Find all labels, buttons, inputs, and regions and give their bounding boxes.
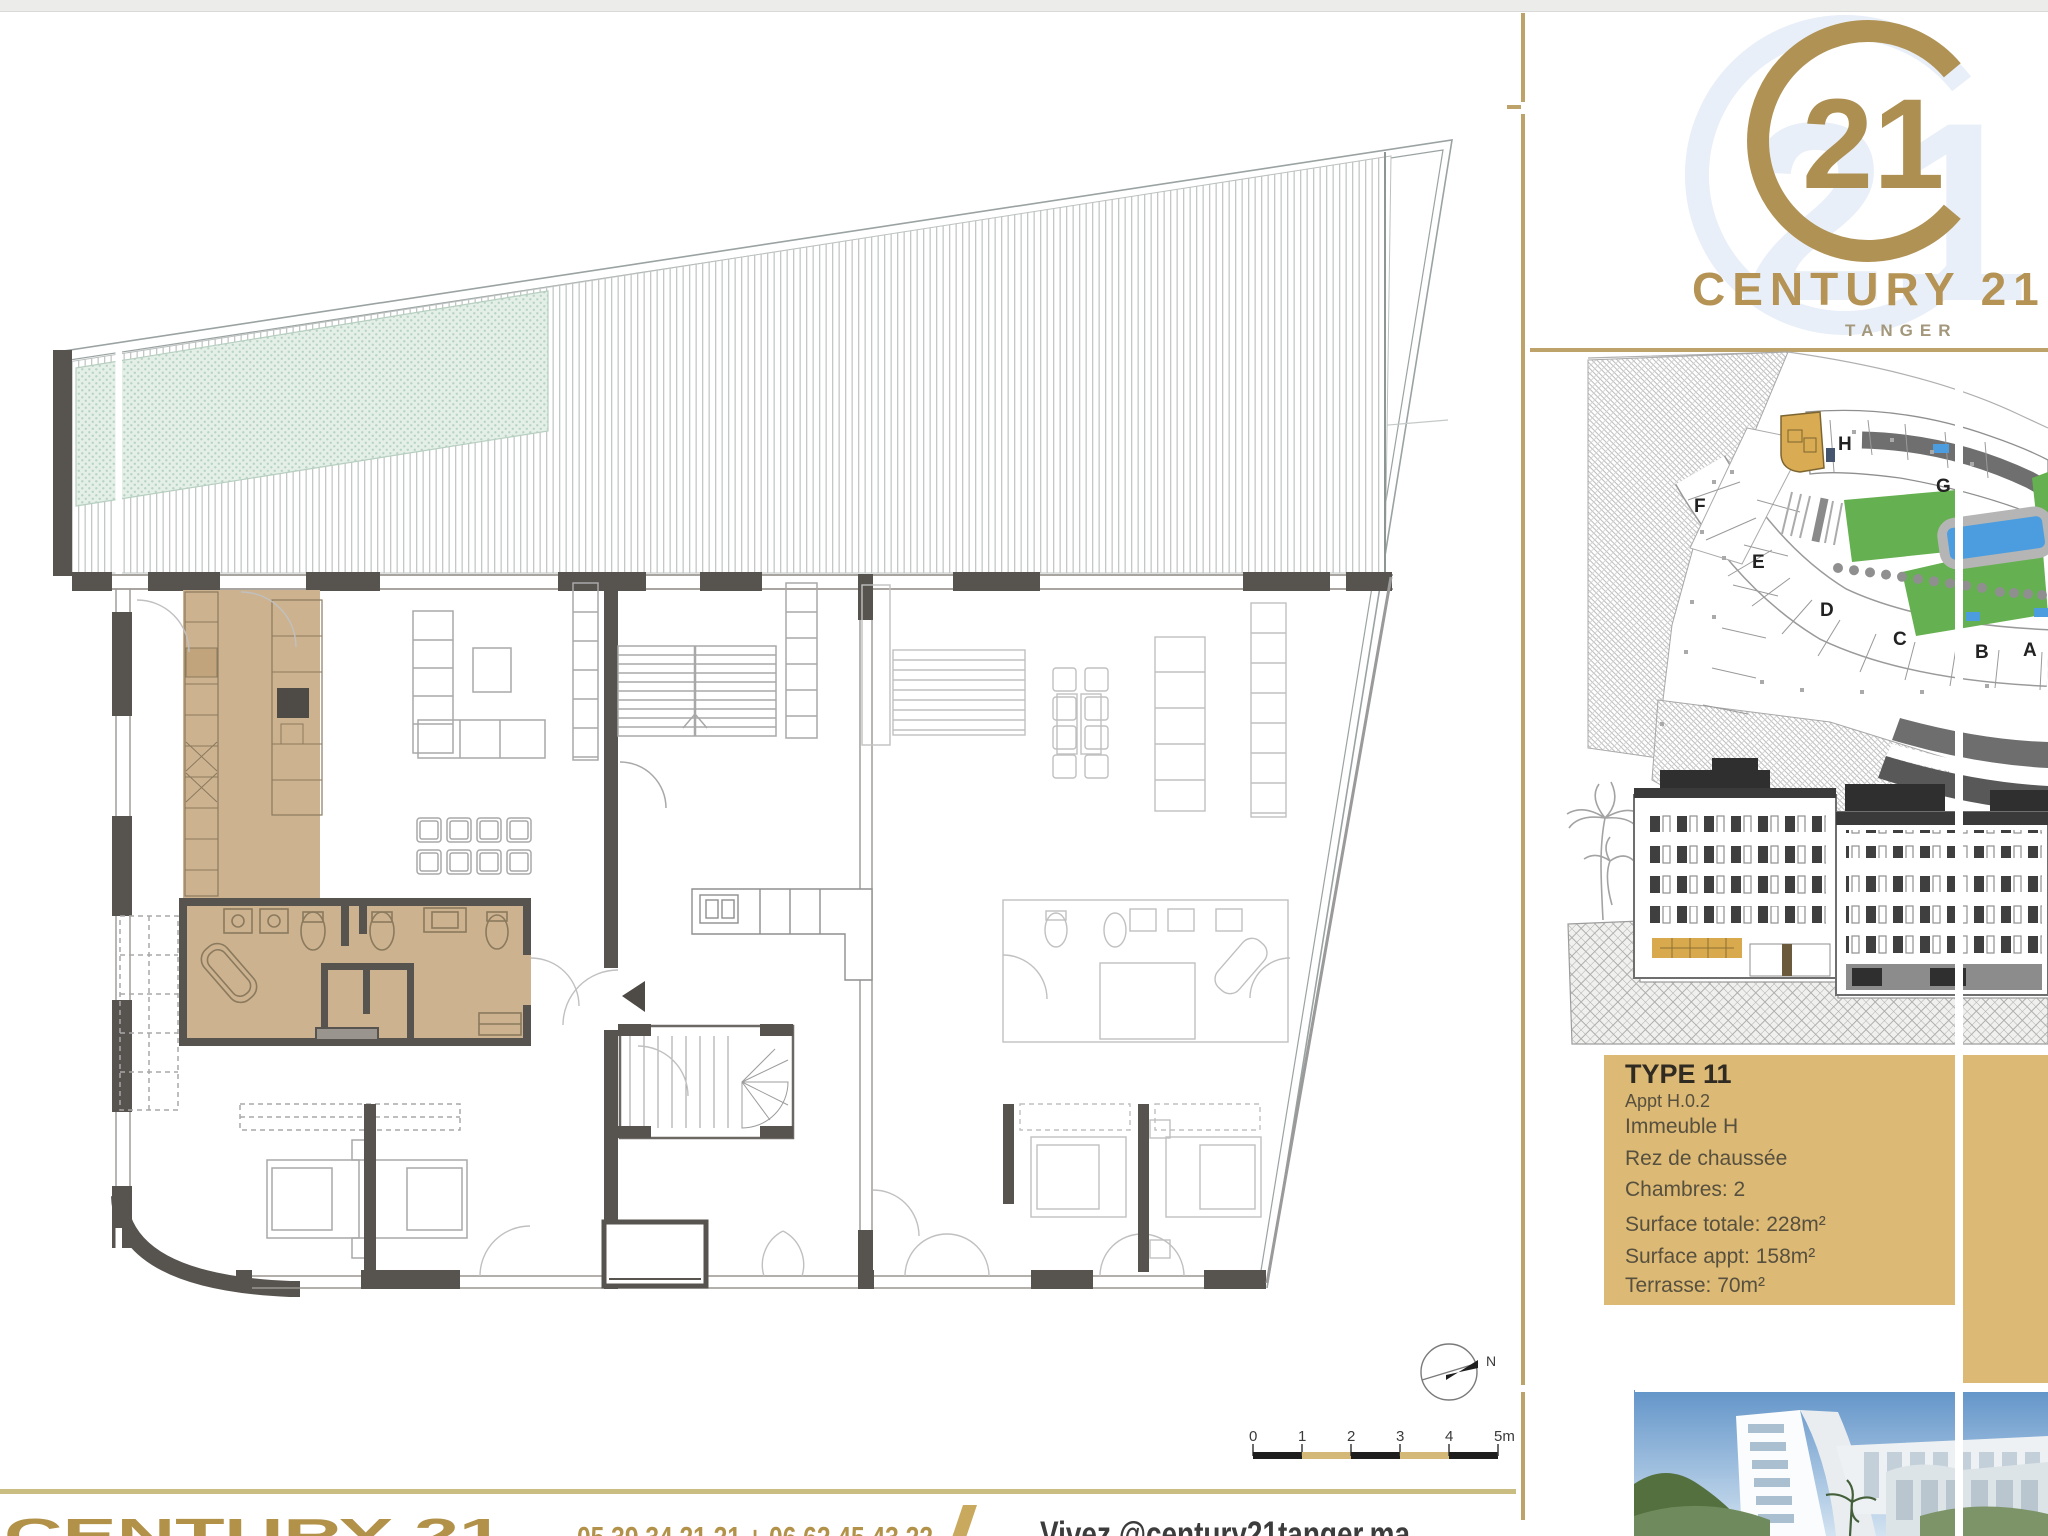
svg-text:Terrasse: 70m²: Terrasse: 70m² xyxy=(1625,1274,1765,1297)
svg-text:3: 3 xyxy=(1396,1428,1404,1445)
svg-text:2: 2 xyxy=(1347,1428,1355,1445)
svg-text:C: C xyxy=(1893,629,1907,650)
svg-text:05 39 34 21 21 + 06 62 45 43 2: 05 39 34 21 21 + 06 62 45 43 22 xyxy=(577,1520,933,1536)
svg-text:4: 4 xyxy=(1445,1428,1453,1445)
svg-text:5m: 5m xyxy=(1494,1428,1515,1445)
svg-text:Immeuble H: Immeuble H xyxy=(1625,1115,1738,1138)
svg-text:Surface totale: 228m²: Surface totale: 228m² xyxy=(1625,1213,1826,1236)
svg-text:Vivez @century21tanger.ma: Vivez @century21tanger.ma xyxy=(1040,1515,1410,1536)
svg-text:N: N xyxy=(1486,1353,1496,1369)
svg-text:A: A xyxy=(2023,640,2037,661)
svg-text:G: G xyxy=(1936,476,1951,497)
svg-text:D: D xyxy=(1820,600,1834,621)
svg-text:21: 21 xyxy=(1802,73,1944,216)
svg-text:CENTURY 21: CENTURY 21 xyxy=(4,1509,504,1536)
svg-text:Rez de chaussée: Rez de chaussée xyxy=(1625,1147,1787,1170)
svg-text:0: 0 xyxy=(1249,1428,1257,1445)
svg-text:Chambres: 2: Chambres: 2 xyxy=(1625,1178,1745,1201)
svg-text:B: B xyxy=(1975,642,1989,663)
svg-text:F: F xyxy=(1694,496,1706,517)
svg-text:1: 1 xyxy=(1298,1428,1306,1445)
svg-text:CENTURY 21: CENTURY 21 xyxy=(1692,263,2046,315)
svg-text:TANGER: TANGER xyxy=(1845,321,1958,340)
svg-text:TYPE 11: TYPE 11 xyxy=(1625,1059,1732,1089)
svg-text:Appt H.0.2: Appt H.0.2 xyxy=(1625,1091,1710,1111)
svg-text:H: H xyxy=(1838,434,1852,455)
svg-text:Surface appt: 158m²: Surface appt: 158m² xyxy=(1625,1245,1815,1268)
svg-text:E: E xyxy=(1752,552,1765,573)
